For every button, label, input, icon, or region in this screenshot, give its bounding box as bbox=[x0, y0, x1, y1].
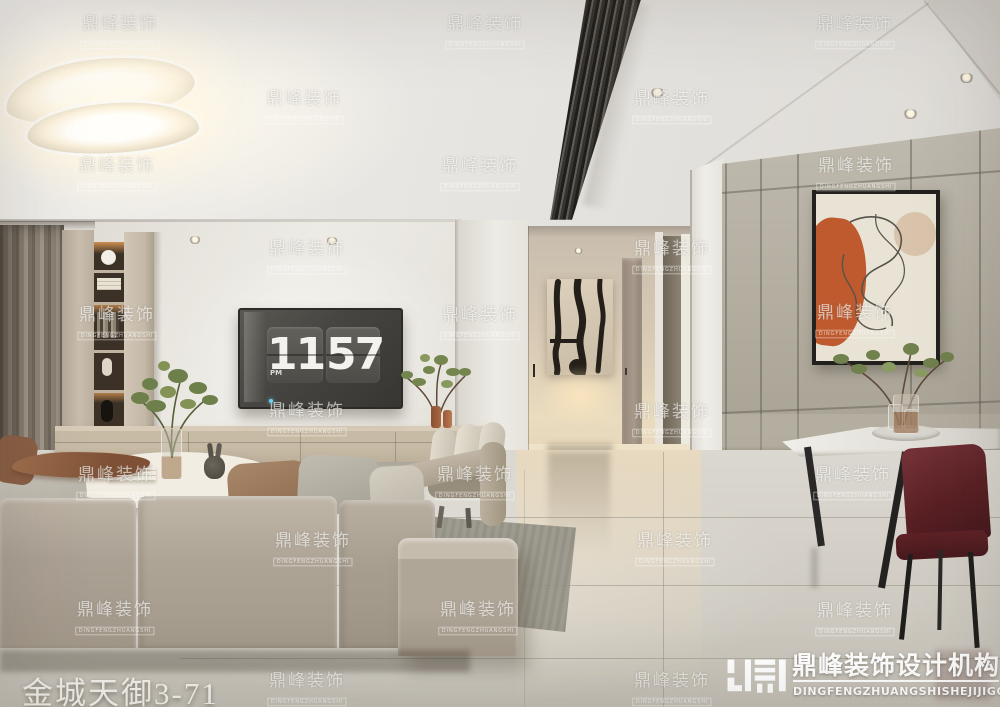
shelf-figurine-dark bbox=[101, 400, 113, 422]
white-column bbox=[690, 158, 724, 464]
flip-clock-hour-card: 11 PM bbox=[267, 327, 323, 383]
wall-groove bbox=[760, 152, 762, 450]
brand-logo-divider bbox=[793, 680, 999, 682]
hallway-door-frame bbox=[655, 232, 663, 466]
door-stop-detail bbox=[533, 364, 535, 377]
downlight-icon bbox=[650, 88, 665, 98]
hallway-artwork bbox=[547, 279, 613, 375]
downlight-icon bbox=[189, 236, 201, 244]
dining-chair bbox=[890, 444, 998, 654]
flip-card-split-line bbox=[267, 354, 323, 356]
hallway-artwork-strokes bbox=[547, 279, 613, 375]
caption-text: 金城天御3-71 bbox=[22, 676, 219, 707]
wall-panel-left bbox=[62, 230, 94, 432]
brand-logo-title: 鼎峰装饰设计机构 bbox=[792, 646, 1000, 682]
brand-logo-subtitle: DINGFENGZHUANGSHISHEJIJIGOU bbox=[793, 685, 1000, 698]
interior-rendering: 11 PM 57 bbox=[0, 0, 1000, 707]
hallway-door bbox=[622, 258, 642, 460]
tv-led-icon bbox=[269, 399, 273, 403]
table-leg-reflection bbox=[812, 548, 817, 588]
tv-screen: 11 PM 57 bbox=[238, 308, 403, 409]
downlight-icon bbox=[903, 109, 918, 119]
flip-clock-minute-card: 57 bbox=[326, 327, 380, 383]
wall-groove bbox=[797, 146, 799, 450]
armchair-leg bbox=[436, 506, 444, 528]
wall-groove bbox=[725, 158, 727, 450]
floor-seam-vertical bbox=[663, 452, 664, 707]
sofa-arm-right bbox=[398, 538, 518, 656]
flip-card-split-line bbox=[326, 354, 380, 356]
tv-reflection bbox=[244, 312, 266, 402]
column-corner-line bbox=[690, 170, 692, 462]
door-handle-icon bbox=[625, 368, 627, 375]
dining-vase bbox=[893, 394, 919, 434]
chair-leg bbox=[899, 554, 913, 640]
armchair-frame-side bbox=[480, 442, 506, 526]
sofa-throw-blanket bbox=[12, 452, 150, 478]
ceiling-light-fixture bbox=[0, 48, 215, 158]
shelf-clock-decor bbox=[101, 250, 116, 265]
chair-backrest bbox=[901, 443, 991, 543]
glass-vase bbox=[161, 428, 182, 480]
brand-logo: 鼎峰装饰设计机构 DINGFENGZHUANGSHISHEJIJIGOU bbox=[718, 644, 1000, 704]
shelf-books-vertical bbox=[97, 312, 119, 338]
sofa-back-section bbox=[0, 498, 136, 648]
brand-logo-mark-icon bbox=[720, 648, 788, 702]
chair-leg bbox=[937, 550, 942, 630]
hallway-far-door bbox=[663, 236, 681, 466]
flip-clock-meridiem: PM bbox=[270, 369, 282, 377]
bunny-body bbox=[204, 456, 225, 479]
hallway-art-glow bbox=[538, 366, 622, 426]
downlight-icon bbox=[959, 73, 974, 83]
shelf-books-white bbox=[97, 278, 121, 290]
bunny-figurine bbox=[202, 443, 228, 479]
hallway bbox=[528, 226, 692, 472]
chair-leg bbox=[968, 552, 980, 648]
armchair-leg bbox=[465, 508, 471, 528]
console-drawer-seam bbox=[300, 432, 301, 462]
downlight-icon bbox=[326, 237, 338, 245]
shelf-figurine-light bbox=[102, 358, 112, 376]
shelf-divider bbox=[94, 270, 124, 273]
project-caption: 金城天御3-71 bbox=[22, 668, 219, 707]
downlight-icon bbox=[574, 248, 583, 254]
sofa-back-section bbox=[138, 496, 337, 648]
